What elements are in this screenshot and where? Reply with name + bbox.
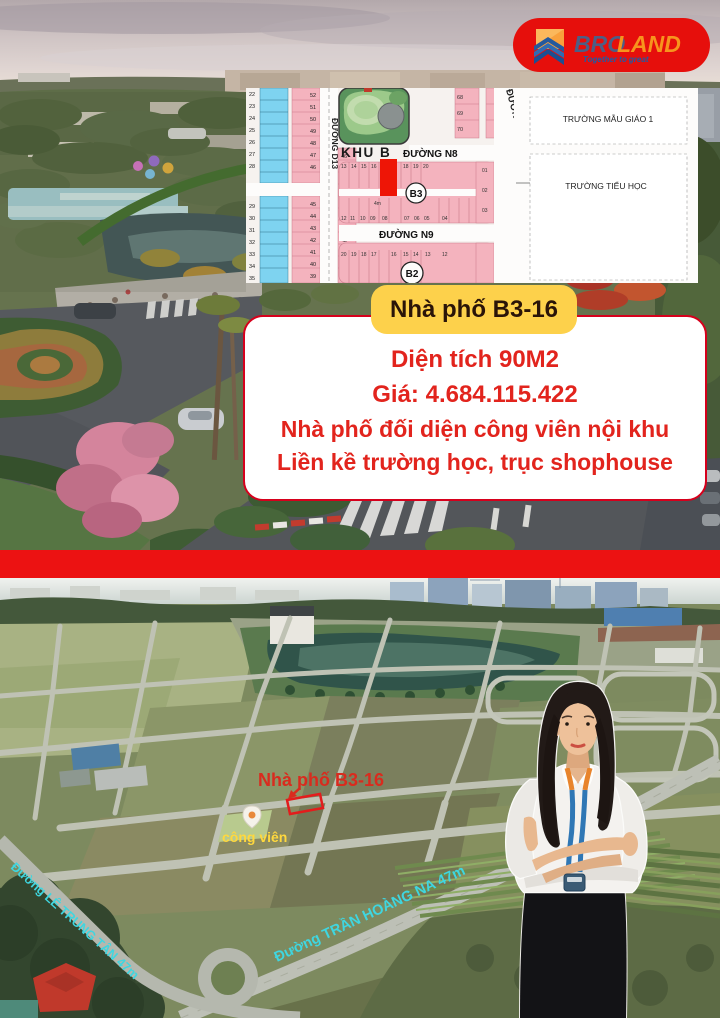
svg-text:47: 47 bbox=[310, 153, 316, 159]
svg-text:44: 44 bbox=[310, 214, 316, 220]
svg-text:68: 68 bbox=[457, 95, 463, 101]
svg-text:Nhà phố B3-16: Nhà phố B3-16 bbox=[258, 770, 384, 790]
svg-text:15: 15 bbox=[361, 164, 367, 170]
svg-text:42: 42 bbox=[310, 238, 316, 244]
svg-text:02: 02 bbox=[482, 188, 488, 194]
svg-text:25: 25 bbox=[249, 128, 255, 134]
svg-text:16: 16 bbox=[371, 164, 377, 170]
svg-text:13: 13 bbox=[425, 252, 431, 258]
svg-text:49: 49 bbox=[310, 129, 316, 135]
svg-text:14: 14 bbox=[413, 252, 419, 258]
svg-text:34: 34 bbox=[249, 264, 255, 270]
svg-text:40: 40 bbox=[310, 262, 316, 268]
svg-text:01: 01 bbox=[482, 168, 488, 174]
svg-text:45: 45 bbox=[310, 202, 316, 208]
svg-text:17: 17 bbox=[371, 252, 377, 258]
svg-text:27: 27 bbox=[249, 152, 255, 158]
svg-text:19: 19 bbox=[351, 252, 357, 258]
svg-text:30: 30 bbox=[249, 216, 255, 222]
svg-text:20: 20 bbox=[341, 252, 347, 258]
svg-text:03: 03 bbox=[482, 208, 488, 214]
svg-text:33: 33 bbox=[249, 252, 255, 258]
svg-text:04: 04 bbox=[442, 216, 448, 222]
svg-text:08: 08 bbox=[382, 216, 388, 222]
svg-text:06: 06 bbox=[414, 216, 420, 222]
svg-text:70: 70 bbox=[457, 127, 463, 133]
svg-text:52: 52 bbox=[310, 93, 316, 99]
svg-text:32: 32 bbox=[249, 240, 255, 246]
svg-text:TRƯỜNG MẪU GIÁO 1: TRƯỜNG MẪU GIÁO 1 bbox=[563, 113, 654, 124]
svg-text:29: 29 bbox=[249, 204, 255, 210]
svg-text:12: 12 bbox=[442, 252, 448, 258]
svg-text:24: 24 bbox=[249, 116, 255, 122]
svg-text:35: 35 bbox=[249, 276, 255, 282]
svg-text:50: 50 bbox=[310, 117, 316, 123]
svg-text:B3: B3 bbox=[410, 189, 423, 200]
svg-text:48: 48 bbox=[310, 141, 316, 147]
svg-text:11: 11 bbox=[350, 216, 355, 222]
svg-text:14: 14 bbox=[351, 164, 357, 170]
svg-text:39: 39 bbox=[310, 274, 316, 280]
svg-text:15: 15 bbox=[403, 252, 409, 258]
svg-text:31: 31 bbox=[249, 228, 255, 234]
svg-text:28: 28 bbox=[249, 164, 255, 170]
svg-text:TRƯỜNG TIỂU HỌC: TRƯỜNG TIỂU HỌC bbox=[565, 180, 646, 191]
svg-text:ĐƯỜNG N9: ĐƯỜNG N9 bbox=[379, 228, 434, 241]
svg-text:09: 09 bbox=[370, 216, 376, 222]
svg-text:13: 13 bbox=[341, 164, 347, 170]
svg-text:46: 46 bbox=[310, 165, 316, 171]
svg-text:26: 26 bbox=[249, 140, 255, 146]
svg-text:4m: 4m bbox=[374, 201, 381, 207]
svg-text:18: 18 bbox=[361, 252, 367, 258]
svg-text:ĐƯỜNG N8: ĐƯỜNG N8 bbox=[403, 147, 458, 160]
svg-text:10: 10 bbox=[360, 216, 366, 222]
svg-text:KHU B: KHU B bbox=[341, 145, 391, 160]
svg-text:công viên: công viên bbox=[222, 829, 287, 845]
svg-text:51: 51 bbox=[310, 105, 316, 111]
svg-text:B2: B2 bbox=[406, 269, 419, 280]
svg-text:18: 18 bbox=[403, 164, 409, 170]
svg-text:LAND: LAND bbox=[617, 31, 681, 57]
svg-text:20: 20 bbox=[423, 164, 429, 170]
svg-text:43: 43 bbox=[310, 226, 316, 232]
svg-text:23: 23 bbox=[249, 104, 255, 110]
svg-text:19: 19 bbox=[413, 164, 419, 170]
svg-text:12: 12 bbox=[341, 216, 347, 222]
svg-text:05: 05 bbox=[424, 216, 430, 222]
svg-text:16: 16 bbox=[391, 252, 397, 258]
svg-text:Together to great: Together to great bbox=[583, 55, 649, 64]
svg-text:41: 41 bbox=[310, 250, 316, 256]
svg-text:22: 22 bbox=[249, 92, 255, 98]
svg-text:69: 69 bbox=[457, 111, 463, 117]
svg-text:07: 07 bbox=[404, 216, 410, 222]
